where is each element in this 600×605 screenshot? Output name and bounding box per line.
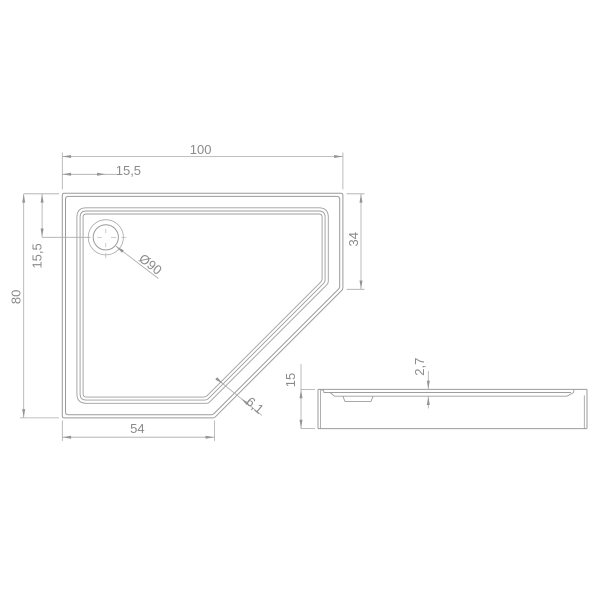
svg-text:100: 100 — [190, 142, 212, 157]
svg-text:6,1: 6,1 — [243, 394, 266, 417]
svg-text:15: 15 — [283, 373, 298, 387]
svg-text:80: 80 — [9, 290, 24, 304]
svg-text:Ø90: Ø90 — [136, 251, 165, 278]
svg-text:34: 34 — [346, 232, 361, 246]
svg-text:2,7: 2,7 — [412, 358, 427, 376]
svg-text:54: 54 — [130, 421, 144, 436]
svg-text:15,5: 15,5 — [29, 243, 44, 268]
svg-text:15,5: 15,5 — [116, 163, 141, 178]
